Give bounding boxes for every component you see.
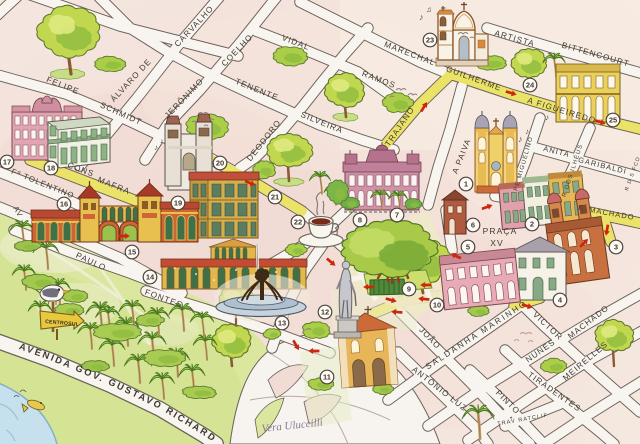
svg-text:17: 17 [3,158,11,167]
svg-text:♫: ♫ [426,5,432,14]
svg-text:6: 6 [471,221,475,230]
svg-text:7: 7 [395,211,399,220]
svg-text:22: 22 [294,218,302,227]
svg-text:18: 18 [47,164,55,173]
svg-text:14: 14 [146,273,155,282]
svg-text:16: 16 [60,200,68,209]
svg-text:8: 8 [358,216,362,225]
svg-text:25: 25 [609,116,617,125]
svg-text:3: 3 [614,243,618,252]
svg-text:10: 10 [433,301,441,310]
svg-text:23: 23 [426,36,434,45]
svg-text:PRAÇA: PRAÇA [483,226,518,236]
svg-text:24: 24 [526,81,535,90]
svg-text:♪: ♪ [545,113,549,122]
svg-text:12: 12 [321,308,329,317]
svg-text:9: 9 [407,285,411,294]
svg-text:♪: ♪ [525,127,529,136]
svg-text:♪: ♪ [518,134,523,144]
svg-text:15: 15 [128,248,136,257]
svg-text:5: 5 [466,243,470,252]
svg-text:1: 1 [464,180,468,189]
svg-text:13: 13 [278,319,286,328]
svg-text:XV: XV [490,238,504,248]
svg-text:♪: ♪ [419,12,424,22]
svg-text:♪: ♪ [160,138,164,145]
svg-text:19: 19 [174,199,182,208]
svg-text:♪: ♪ [154,143,158,152]
svg-text:20: 20 [216,159,224,168]
svg-text:21: 21 [271,193,279,202]
svg-text:2: 2 [530,220,534,229]
svg-text:11: 11 [323,373,331,382]
